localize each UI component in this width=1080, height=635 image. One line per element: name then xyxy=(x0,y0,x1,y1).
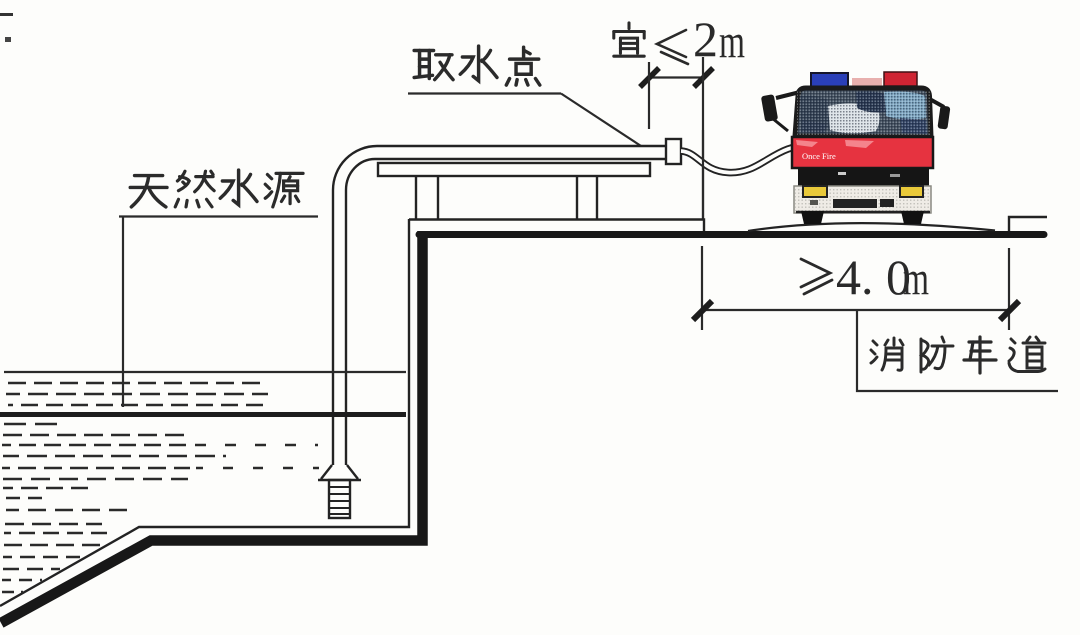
svg-text:m: m xyxy=(903,252,929,305)
svg-text:4. 0: 4. 0 xyxy=(836,249,911,305)
svg-text:2: 2 xyxy=(693,11,718,67)
svg-text:m: m xyxy=(719,15,745,68)
svg-text:Once Fire: Once Fire xyxy=(802,151,836,161)
